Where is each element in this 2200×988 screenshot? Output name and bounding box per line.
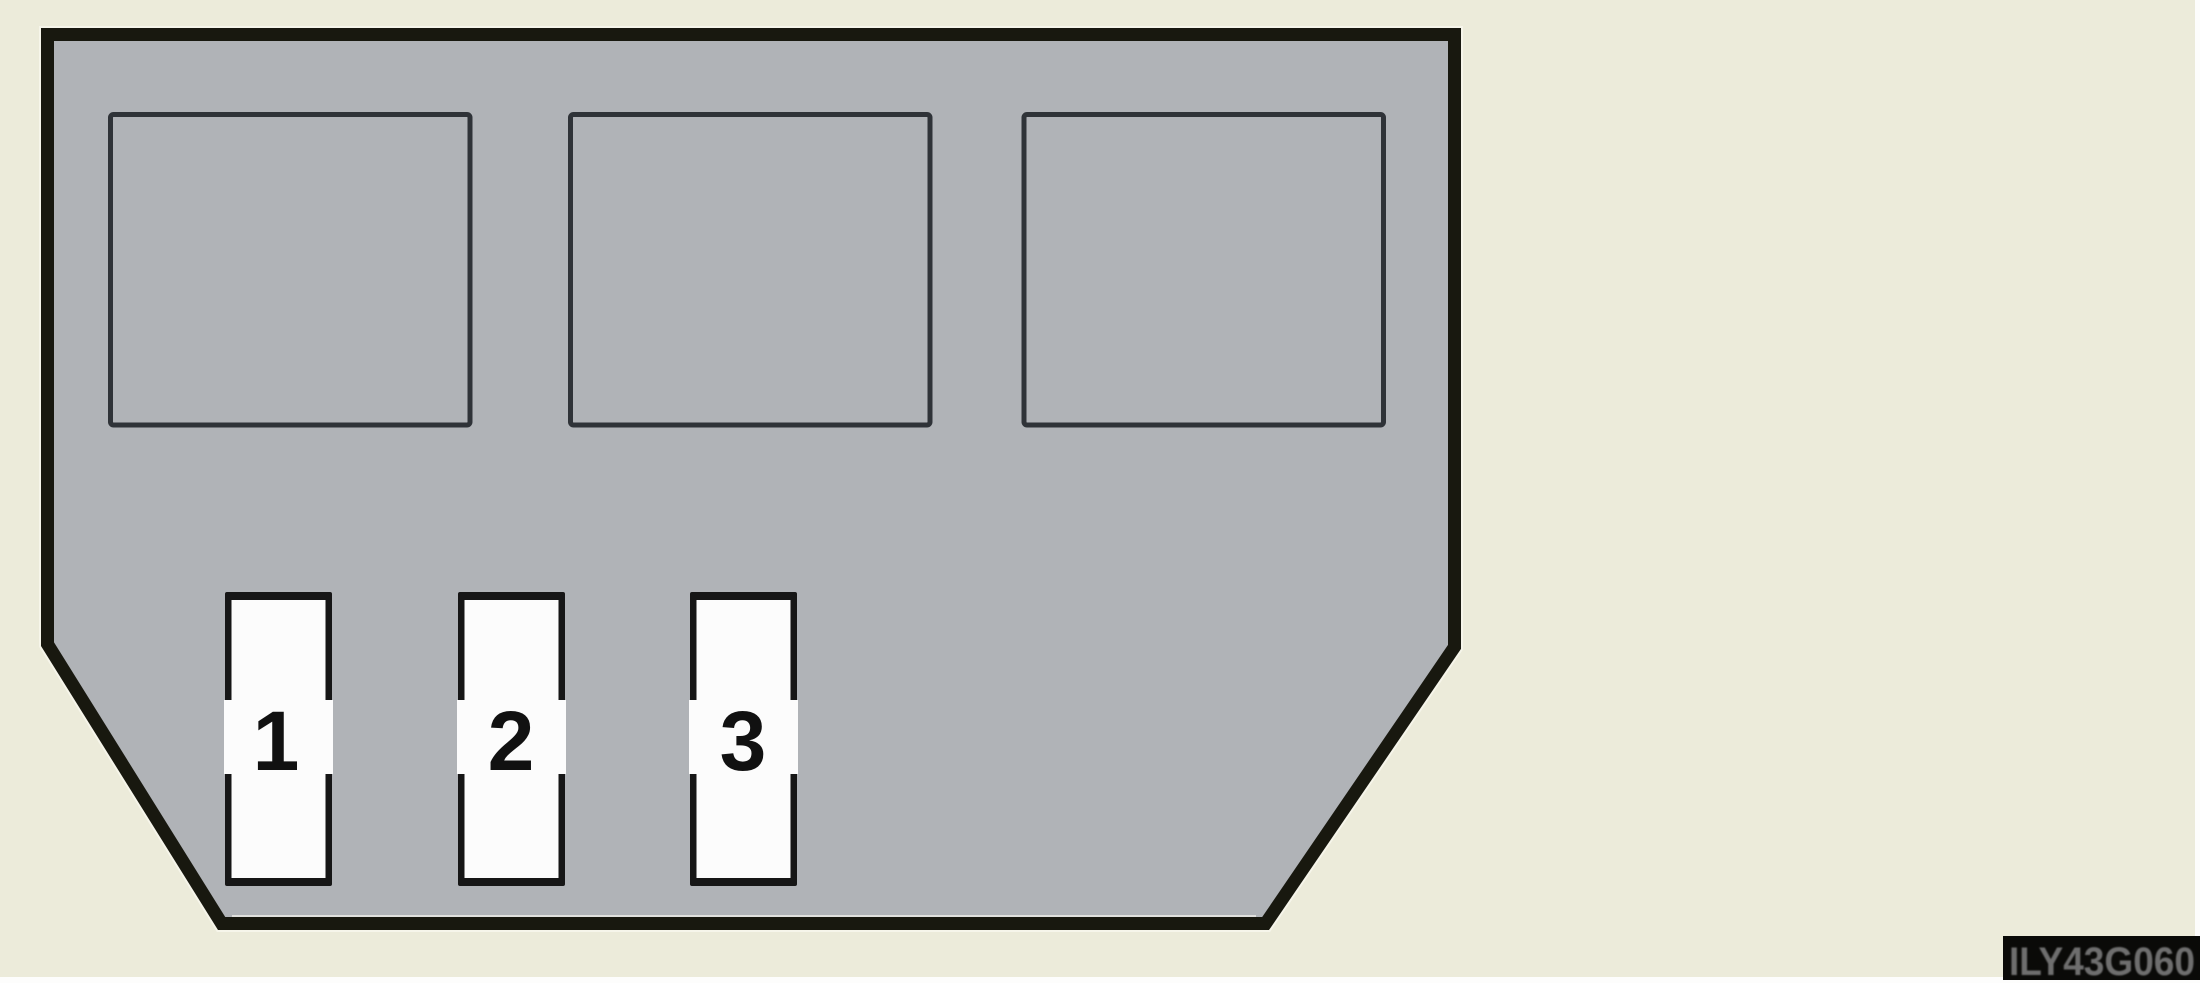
svg-text:ILY43G060: ILY43G060 [2009,940,2195,983]
svg-text:3: 3 [720,694,767,788]
svg-text:2: 2 [488,694,535,788]
svg-text:1: 1 [253,694,300,788]
